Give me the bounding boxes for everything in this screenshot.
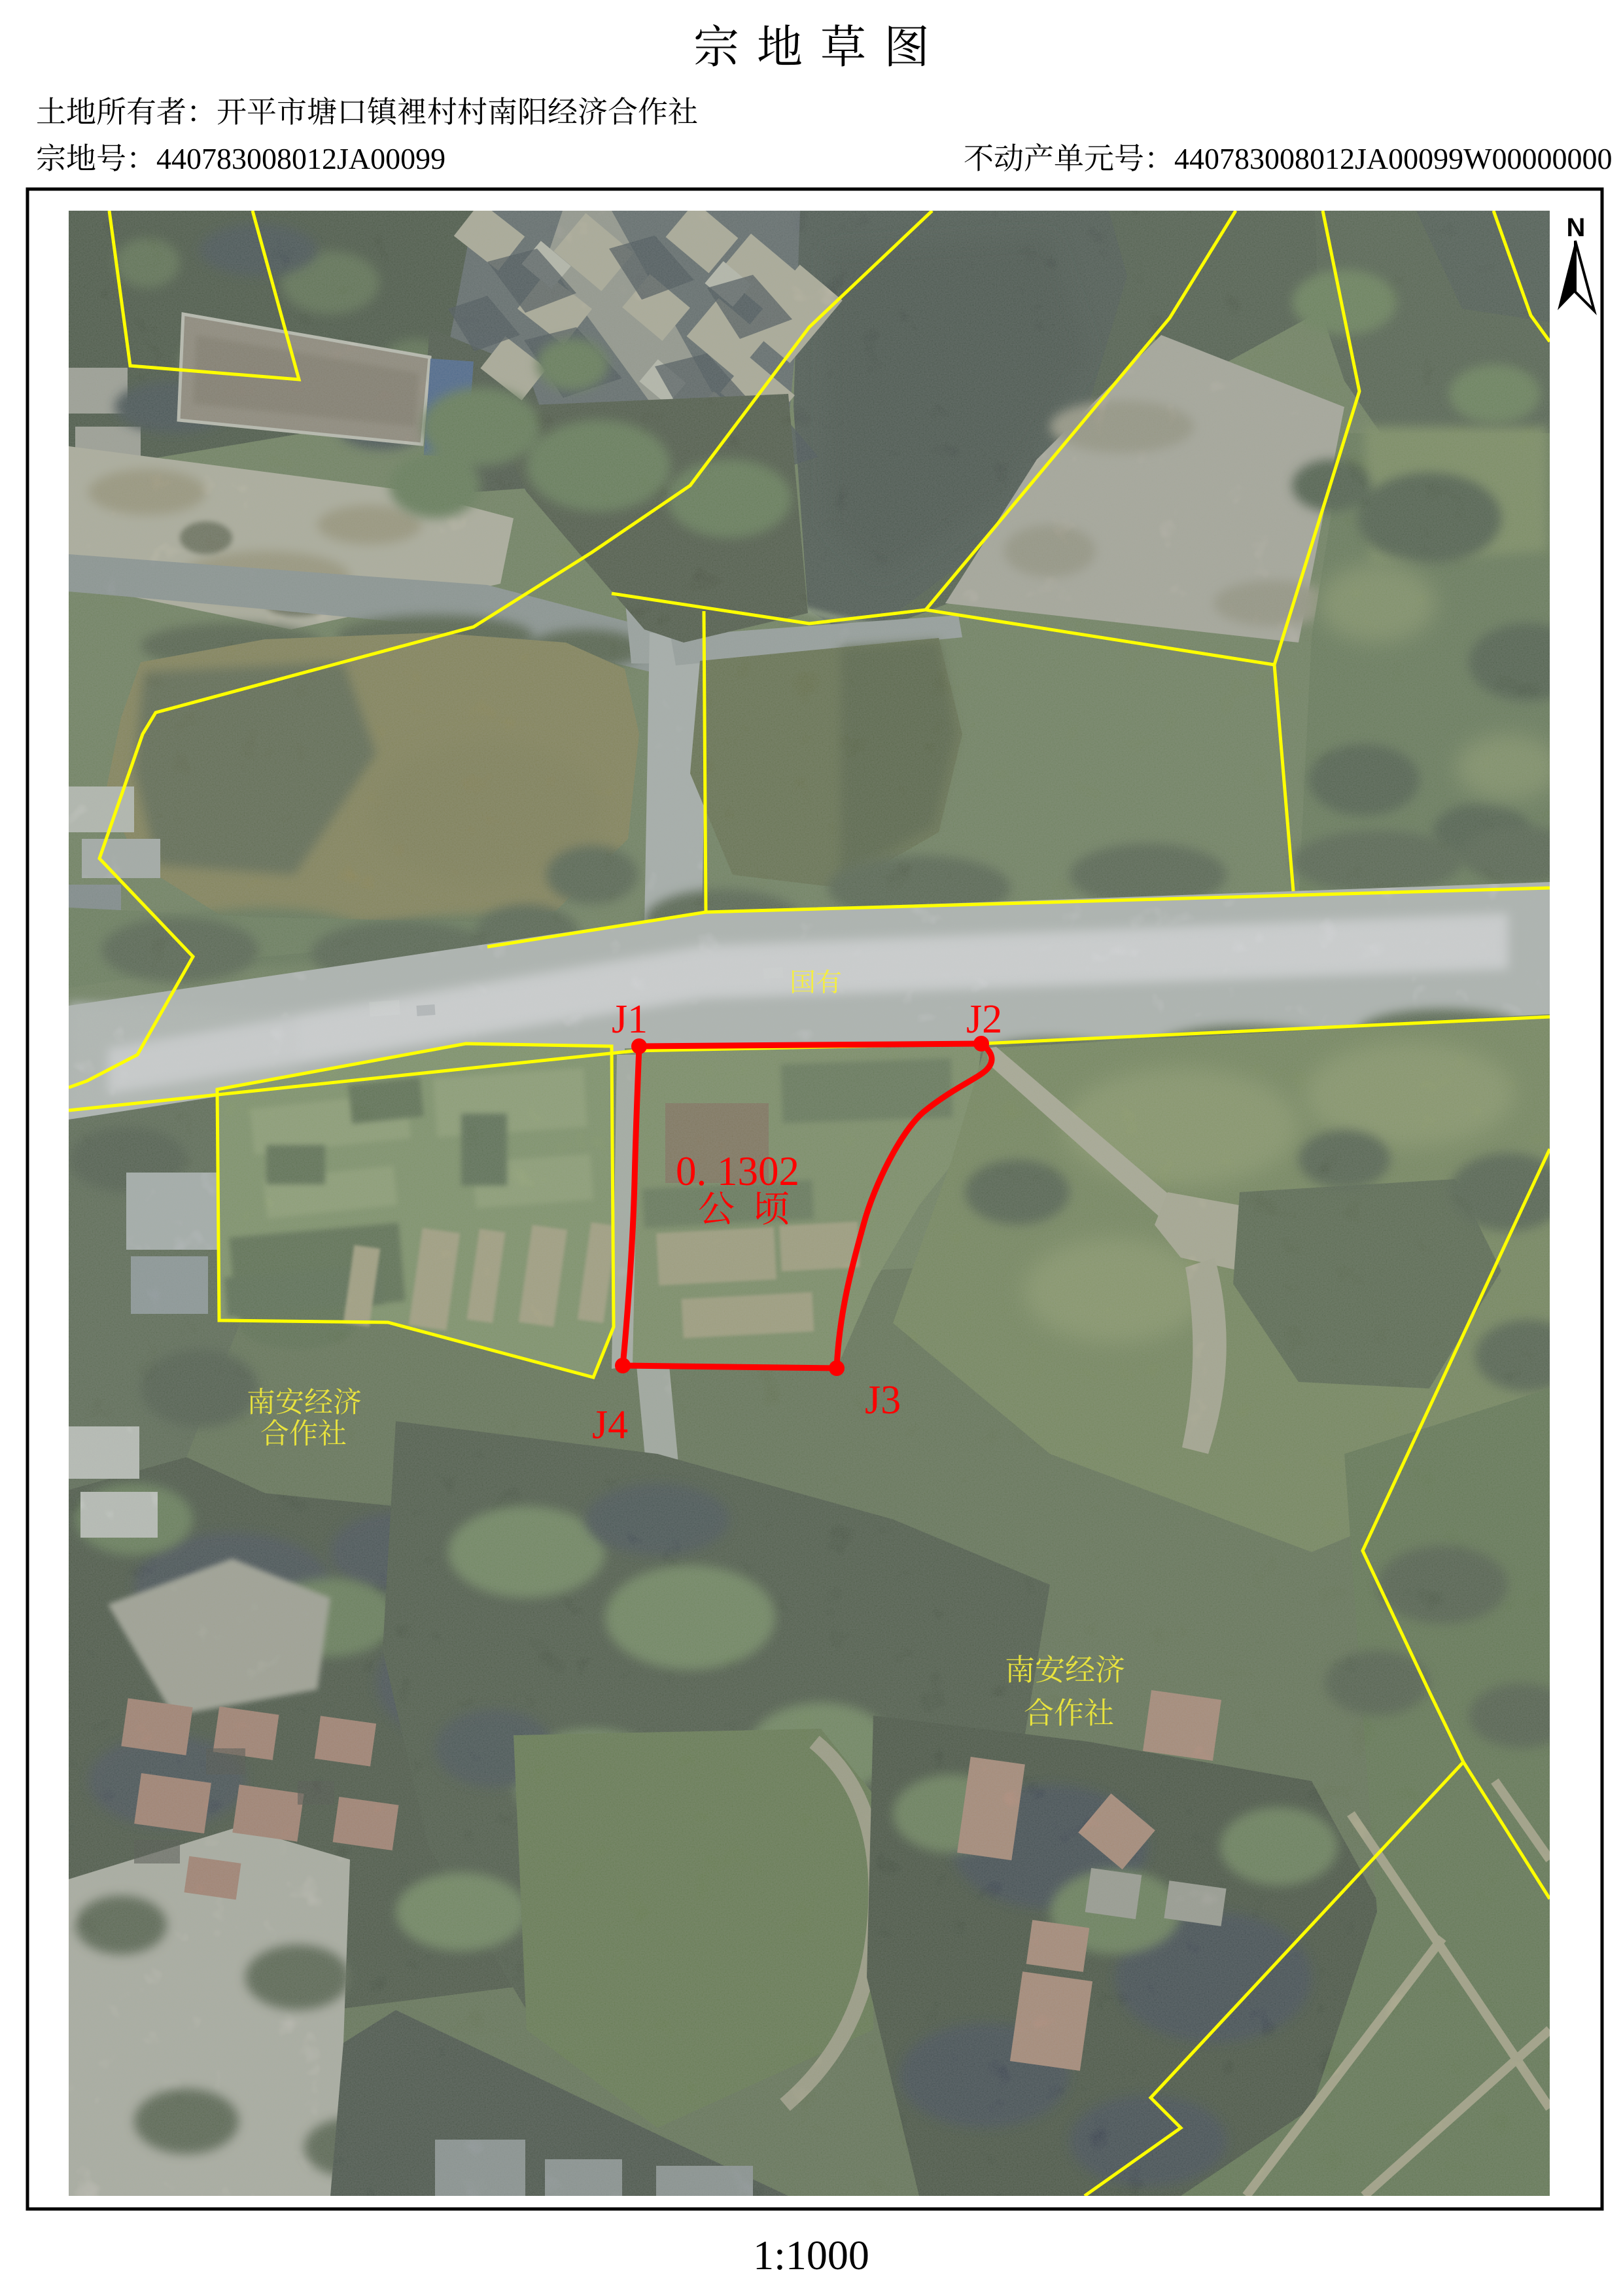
svg-text:1:1000: 1:1000 <box>753 2232 869 2278</box>
svg-text:N: N <box>1567 213 1586 242</box>
svg-text:J3: J3 <box>865 1378 901 1422</box>
svg-text:J4: J4 <box>592 1403 628 1447</box>
svg-text:J2: J2 <box>966 997 1002 1042</box>
svg-text:440783008012JA00099W00000000: 440783008012JA00099W00000000 <box>1174 142 1613 175</box>
svg-text:440783008012JA00099: 440783008012JA00099 <box>156 142 445 175</box>
svg-text:0. 1302: 0. 1302 <box>676 1148 799 1194</box>
svg-text:J1: J1 <box>612 997 648 1042</box>
